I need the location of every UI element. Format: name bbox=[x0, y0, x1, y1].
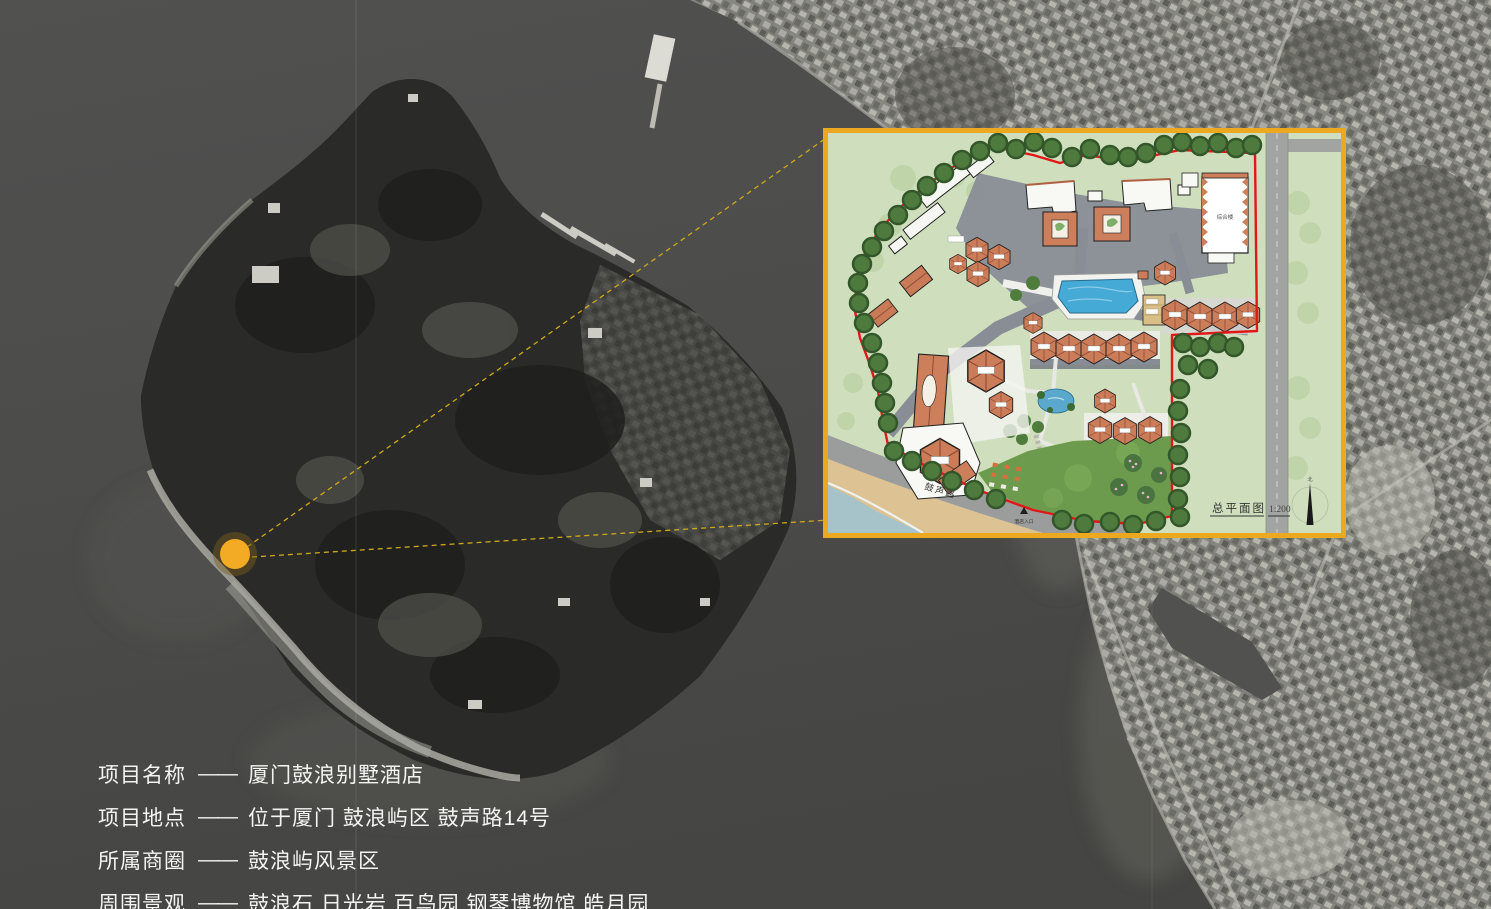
info-value: 位于厦门 鼓浪屿区 鼓声路14号 bbox=[248, 802, 551, 832]
main-building-label: 综合楼 bbox=[1217, 213, 1234, 221]
north-label: 北 bbox=[1307, 476, 1312, 483]
info-label: 周围景观 bbox=[98, 888, 186, 909]
project-info-panel: 项目名称 —— 厦门鼓浪别墅酒店 项目地点 —— 位于厦门 鼓浪屿区 鼓声路14… bbox=[98, 752, 649, 909]
info-value: 鼓浪屿风景区 bbox=[248, 845, 380, 875]
info-dash: —— bbox=[198, 848, 236, 872]
info-dash: —— bbox=[198, 762, 236, 786]
info-value: 鼓浪石 日光岩 百鸟园 钢琴博物馆 皓月园 bbox=[248, 888, 649, 909]
info-row-district: 所属商圈 —— 鼓浪屿风景区 bbox=[98, 838, 649, 881]
info-label: 项目地点 bbox=[98, 802, 186, 832]
info-label: 项目名称 bbox=[98, 759, 186, 789]
info-dash: —— bbox=[198, 891, 236, 909]
slide-canvas: 综合楼 bbox=[0, 0, 1491, 909]
site-plan-inset: 综合楼 bbox=[823, 128, 1346, 538]
plan-scale: 1:200 bbox=[1269, 505, 1291, 515]
plan-title: 总平面图 bbox=[1212, 501, 1266, 515]
info-row-location: 项目地点 —— 位于厦门 鼓浪屿区 鼓声路14号 bbox=[98, 795, 649, 838]
garden-pond bbox=[1037, 389, 1075, 413]
info-row-scenery: 周围景观 —— 鼓浪石 日光岩 百鸟园 钢琴博物馆 皓月园 bbox=[98, 881, 649, 909]
entrance-label: 酒店入口 bbox=[1014, 518, 1033, 525]
swimming-pool bbox=[1052, 271, 1148, 319]
info-label: 所属商圈 bbox=[98, 845, 186, 875]
site-plan-drawing: 综合楼 bbox=[828, 133, 1341, 533]
info-row-project-name: 项目名称 —— 厦门鼓浪别墅酒店 bbox=[98, 752, 649, 795]
info-value: 厦门鼓浪别墅酒店 bbox=[248, 759, 424, 789]
info-dash: —— bbox=[198, 805, 236, 829]
